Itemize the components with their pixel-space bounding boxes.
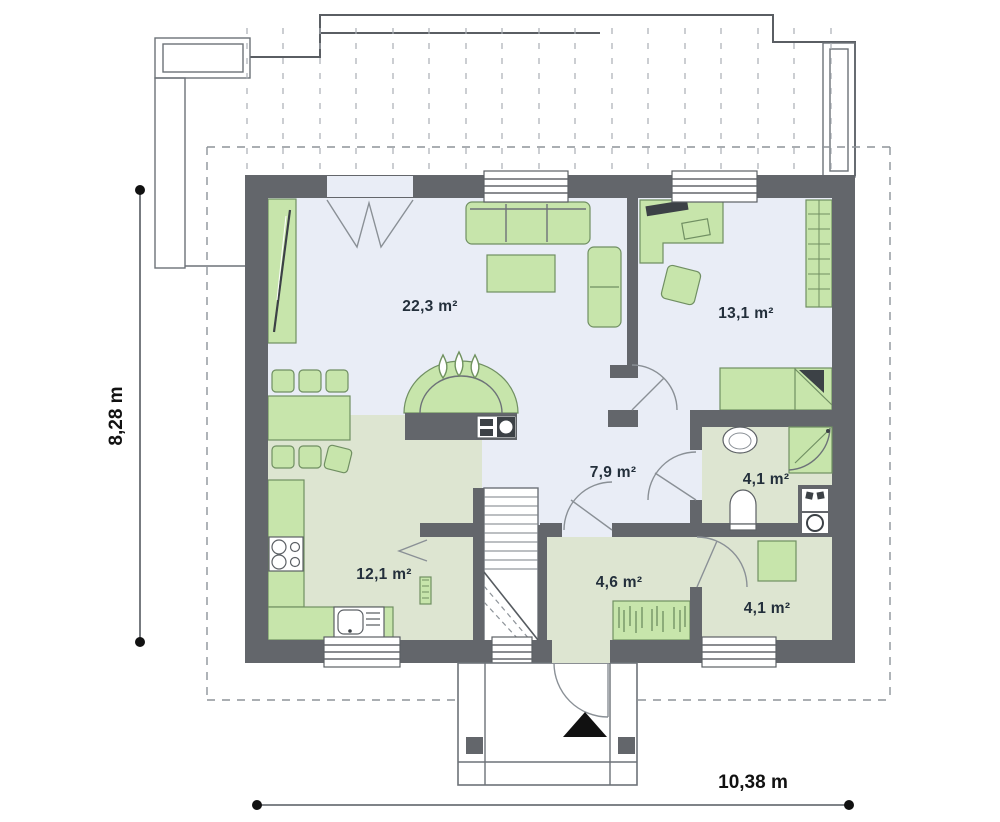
dimension-height: 8,28 m — [106, 185, 145, 647]
chair — [299, 446, 321, 468]
chimney — [823, 43, 855, 177]
chair — [272, 370, 294, 392]
room-label-bathroom: 4,1 m² — [743, 471, 790, 488]
wall-bedroom-bathroom — [690, 410, 832, 427]
chair — [299, 370, 321, 392]
dimension-height-label: 8,28 m — [106, 386, 127, 445]
storage-table — [758, 541, 796, 581]
room-label-hall: 7,9 m² — [590, 464, 637, 481]
wall-right — [832, 175, 855, 663]
room-label-living-room: 22,3 m² — [402, 298, 458, 315]
room-label-bedroom: 13,1 m² — [718, 305, 774, 322]
floor-plan-drawing: 22,3 m² 13,1 m² 7,9 m² 4,1 m² 12,1 m² 4,… — [0, 0, 1000, 822]
room-label-storage: 4,1 m² — [744, 600, 791, 617]
stair-wall-right — [538, 525, 547, 643]
room-label-kitchen: 12,1 m² — [356, 566, 412, 583]
chair — [326, 370, 348, 392]
chair — [272, 446, 294, 468]
chair — [323, 444, 352, 473]
porch-post — [618, 737, 635, 754]
wall-hall-entry — [612, 523, 692, 537]
coffee-table — [487, 255, 555, 292]
wall-living-bedroom — [627, 198, 638, 365]
wall-left — [245, 175, 268, 663]
desk-chair — [660, 264, 701, 305]
toilet — [730, 490, 756, 524]
dimension-width-label: 10,38 m — [718, 772, 788, 793]
radiator — [420, 577, 431, 604]
staircase — [484, 488, 538, 643]
stair-wall-left — [473, 488, 484, 643]
entrance-opening — [552, 640, 610, 663]
terrace-side — [155, 78, 185, 268]
french-door-opening — [327, 176, 413, 197]
room-label-entry: 4,6 m² — [596, 574, 643, 591]
wall-kitchen-stub — [420, 523, 482, 537]
floor-plan-page: 22,3 m² 13,1 m² 7,9 m² 4,1 m² 12,1 m² 4,… — [0, 0, 1000, 822]
porch-post — [466, 737, 483, 754]
dining-table — [268, 396, 350, 440]
boiler — [807, 515, 823, 531]
